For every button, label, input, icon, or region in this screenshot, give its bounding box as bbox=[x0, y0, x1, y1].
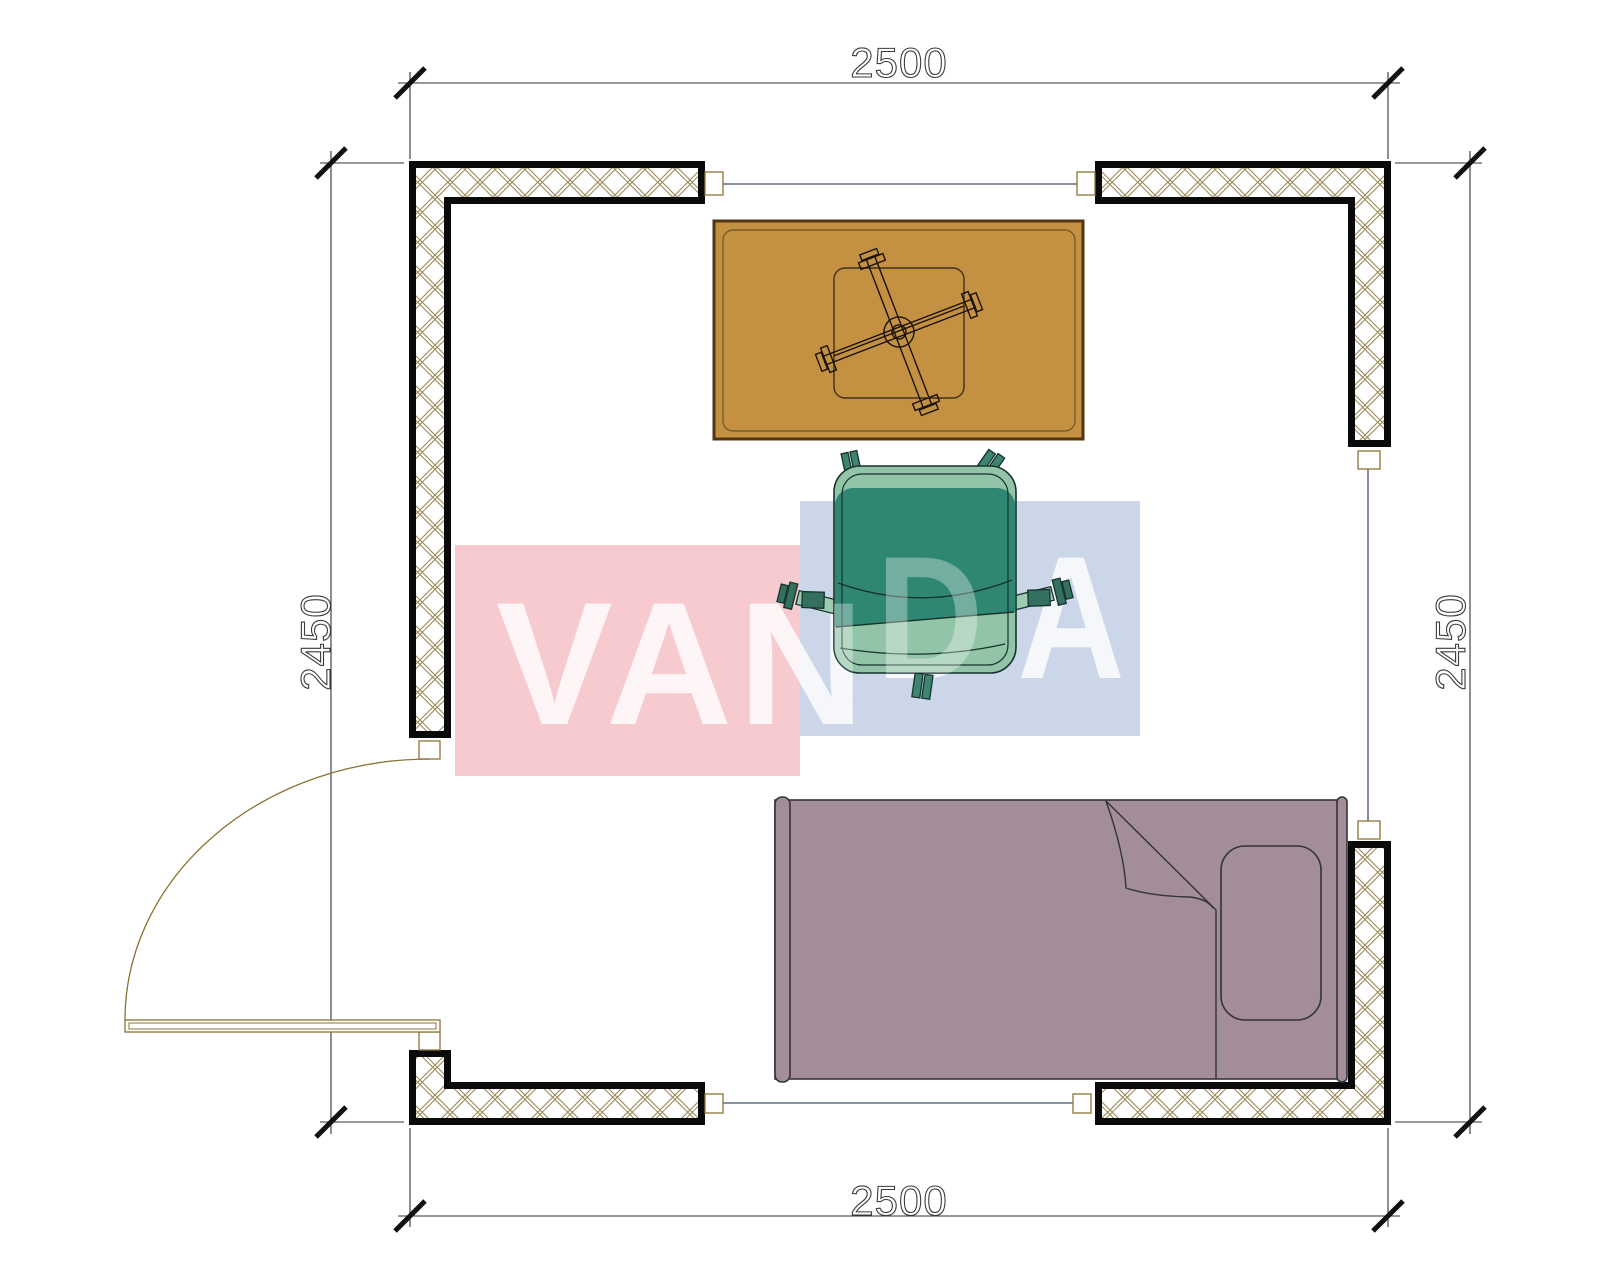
svg-text:2450: 2450 bbox=[292, 593, 339, 690]
svg-text:2500: 2500 bbox=[850, 1177, 947, 1224]
svg-text:2500: 2500 bbox=[850, 39, 947, 86]
svg-text:2450: 2450 bbox=[1427, 593, 1474, 690]
